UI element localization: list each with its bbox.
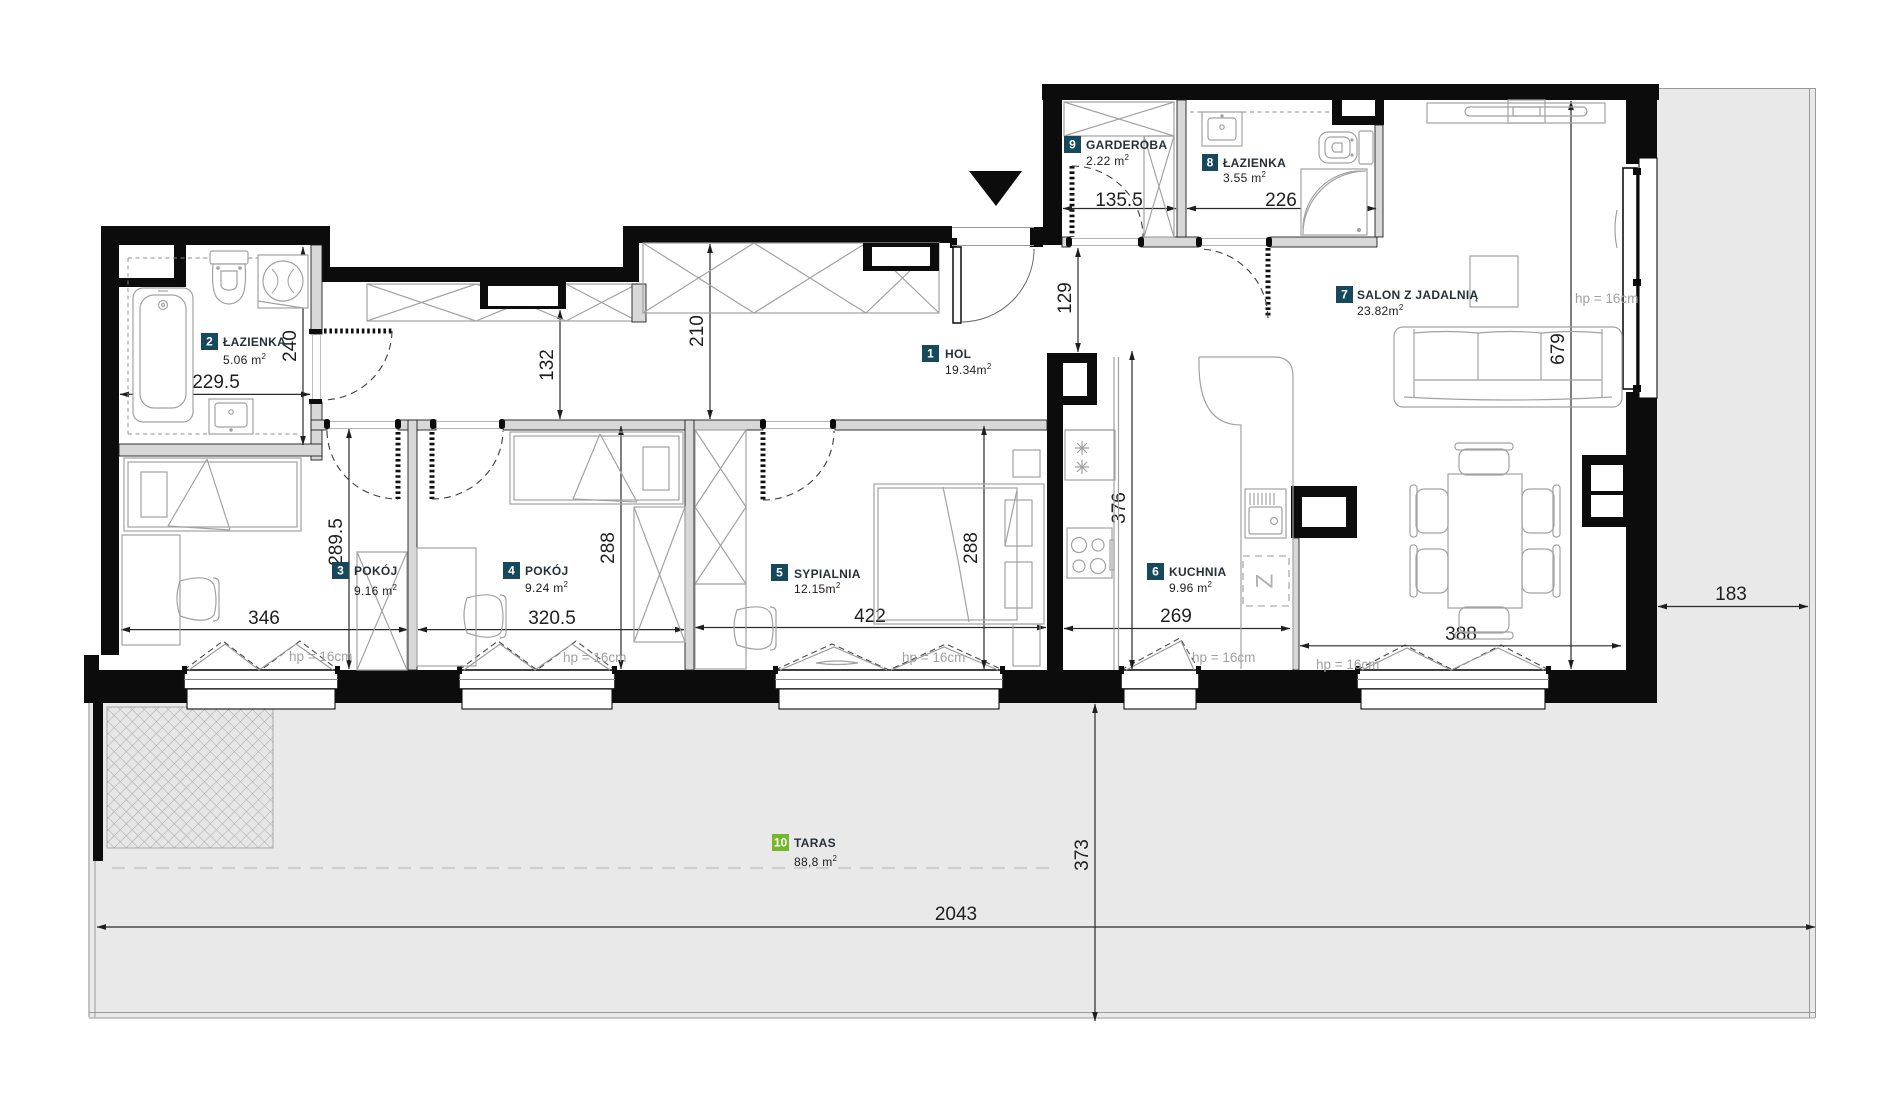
svg-text:ŁAZIENKA: ŁAZIENKA <box>223 335 286 349</box>
svg-text:hp = 16cm: hp = 16cm <box>1575 291 1638 306</box>
svg-text:9.24 m2: 9.24 m2 <box>525 580 569 595</box>
svg-text:320.5: 320.5 <box>528 608 576 629</box>
svg-text:2043: 2043 <box>935 904 977 925</box>
svg-text:288: 288 <box>961 532 982 564</box>
svg-text:SALON Z JADALNIĄ: SALON Z JADALNIĄ <box>1357 288 1478 302</box>
svg-text:269: 269 <box>1160 606 1192 627</box>
svg-text:5: 5 <box>776 566 783 580</box>
svg-text:373: 373 <box>1072 839 1093 871</box>
svg-text:2: 2 <box>206 335 213 349</box>
svg-text:8: 8 <box>1207 156 1214 170</box>
svg-text:376: 376 <box>1109 492 1130 524</box>
svg-text:135.5: 135.5 <box>1095 190 1143 211</box>
svg-text:23.82m2: 23.82m2 <box>1357 303 1404 318</box>
svg-text:hp = 16cm: hp = 16cm <box>902 650 965 665</box>
svg-text:12.15m2: 12.15m2 <box>794 581 841 596</box>
svg-text:3: 3 <box>337 564 344 578</box>
svg-text:679: 679 <box>1548 333 1569 365</box>
svg-text:210: 210 <box>687 315 708 347</box>
svg-text:TARAS: TARAS <box>794 836 836 850</box>
svg-text:ŁAZIENKA: ŁAZIENKA <box>1223 156 1286 170</box>
svg-text:7: 7 <box>1341 288 1348 302</box>
svg-text:226: 226 <box>1265 190 1297 211</box>
svg-text:6: 6 <box>1152 565 1159 579</box>
svg-text:289.5: 289.5 <box>326 518 347 566</box>
svg-text:HOL: HOL <box>945 347 971 361</box>
svg-text:9.16 m2: 9.16 m2 <box>354 583 398 598</box>
svg-text:KUCHNIA: KUCHNIA <box>1169 565 1226 579</box>
svg-text:GARDEROBA: GARDEROBA <box>1086 138 1167 152</box>
svg-text:hp = 16cm: hp = 16cm <box>289 649 352 664</box>
svg-text:SYPIALNIA: SYPIALNIA <box>794 567 861 581</box>
svg-text:5.06 m2: 5.06 m2 <box>223 352 267 367</box>
svg-text:10: 10 <box>774 836 788 850</box>
svg-text:1: 1 <box>927 347 934 361</box>
svg-text:19.34m2: 19.34m2 <box>945 362 992 377</box>
svg-text:183: 183 <box>1715 584 1747 605</box>
svg-text:388: 388 <box>1445 624 1477 645</box>
svg-text:288: 288 <box>598 532 619 564</box>
svg-text:9.96 m2: 9.96 m2 <box>1169 580 1213 595</box>
svg-text:hp = 16cm: hp = 16cm <box>1192 650 1255 665</box>
svg-text:229.5: 229.5 <box>192 372 240 393</box>
svg-text:132: 132 <box>537 349 558 381</box>
svg-text:hp = 16cm: hp = 16cm <box>563 650 626 665</box>
svg-text:POKÓJ: POKÓJ <box>525 563 569 578</box>
svg-text:129: 129 <box>1055 282 1076 314</box>
svg-text:4: 4 <box>508 564 515 578</box>
svg-text:346: 346 <box>248 608 280 629</box>
svg-text:hp = 16cm: hp = 16cm <box>1316 657 1379 672</box>
svg-text:88,8 m2: 88,8 m2 <box>794 854 838 869</box>
svg-text:Z: Z <box>1251 574 1278 589</box>
svg-text:POKÓJ: POKÓJ <box>354 563 398 578</box>
svg-text:2.22 m2: 2.22 m2 <box>1086 153 1130 168</box>
svg-text:9: 9 <box>1069 138 1076 152</box>
svg-text:3.55 m2: 3.55 m2 <box>1223 170 1267 185</box>
